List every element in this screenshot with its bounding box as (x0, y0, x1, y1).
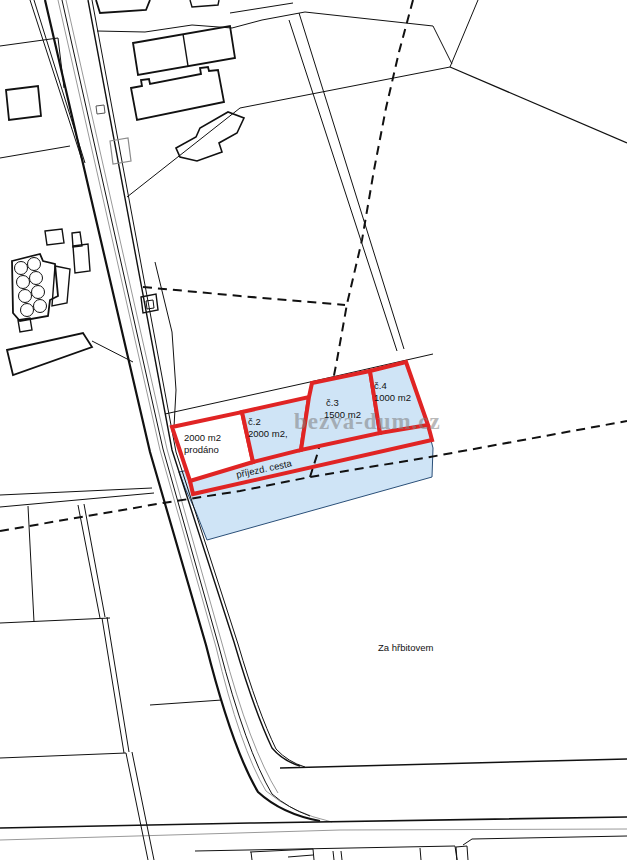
dashed-boundary-line (143, 287, 345, 305)
building-divider (183, 34, 188, 66)
path-edge-line (299, 13, 404, 349)
buildings (6, 0, 244, 375)
silo-circle (21, 304, 34, 317)
boundary-line (126, 752, 154, 860)
road-edge (280, 759, 627, 768)
building-outline (73, 244, 90, 273)
watermark: bezva-dum.cz (294, 409, 441, 434)
boundary-line (450, 0, 478, 67)
silo-circle (34, 300, 47, 313)
area-name-label: Za hřbitovem (378, 642, 434, 653)
parcel-3-label-line1: č.3 (326, 397, 339, 408)
boundary-line (155, 262, 176, 427)
parcel-4-label-line2: 1000 m2 (374, 392, 411, 403)
boundary-line (0, 493, 154, 507)
parcel-1-label-line1: 2000 m2 (184, 432, 221, 443)
building-outline (96, 105, 105, 114)
building-outline (133, 26, 235, 75)
silo-circle (30, 272, 43, 285)
boundary-line (0, 488, 152, 495)
road-edge (195, 836, 627, 860)
silo-circle (15, 262, 28, 275)
boundary-line (127, 67, 450, 197)
boundary-line (450, 67, 627, 143)
cadastral-map: 2000 m2 prodáno č.2 2000 m2, č.3 1500 m2… (0, 0, 627, 860)
building-outline (176, 112, 244, 161)
map-canvas: 2000 m2 prodáno č.2 2000 m2, č.3 1500 m2… (0, 0, 627, 860)
building-outline (131, 67, 224, 120)
boundary-line (333, 848, 421, 860)
boundary-line (0, 146, 70, 158)
silo-circle (32, 286, 45, 299)
boundary-line (0, 618, 110, 623)
boundary-line (102, 617, 129, 753)
boundary-line (0, 38, 64, 88)
building-outline (456, 846, 468, 860)
parcel-2-label-line1: č.2 (248, 416, 261, 427)
road-edge (88, 0, 300, 766)
road-edge (92, 0, 305, 767)
road-fork-line (30, 0, 82, 160)
boundary-line (150, 700, 222, 705)
silo-circle (17, 276, 30, 289)
building-outline (52, 266, 70, 306)
building-outline (190, 0, 219, 7)
building-outline (45, 229, 64, 245)
building-outline (6, 86, 41, 120)
silo-circles (15, 258, 47, 317)
boundary-line (230, 3, 293, 13)
building-outline (250, 849, 314, 860)
path-edge-line (289, 20, 397, 351)
boundary-line (0, 753, 126, 758)
boundary-line (305, 12, 452, 64)
silo-circle (28, 258, 41, 271)
building-outline (146, 300, 154, 309)
silo-circle (19, 290, 32, 303)
boundary-line (28, 506, 34, 622)
parcel-1-label-line2: prodáno (184, 444, 219, 455)
parcel-4-label-line1: č.4 (374, 380, 387, 391)
road-fork-line (34, 0, 85, 163)
boundary-line (78, 504, 105, 618)
building-outline (7, 333, 92, 375)
building-outline (96, 0, 150, 13)
parcel-2-label-line2: 2000 m2, (248, 428, 288, 439)
road-line (0, 829, 627, 840)
boundary-line (97, 12, 305, 32)
